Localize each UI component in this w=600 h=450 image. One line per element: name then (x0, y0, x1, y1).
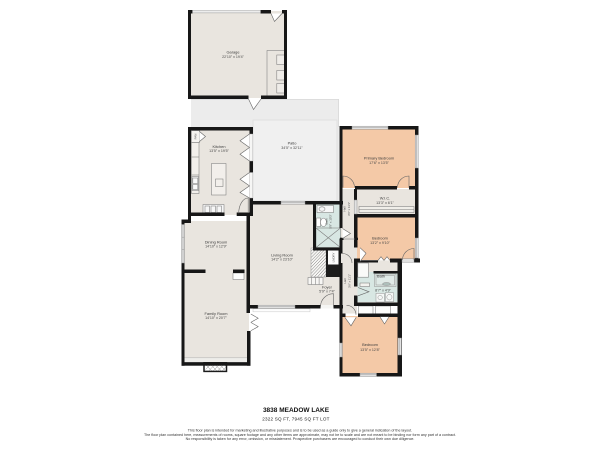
svg-text:W.I.C.: W.I.C. (380, 196, 391, 201)
svg-text:14'10" x 12'9": 14'10" x 12'9" (205, 244, 227, 248)
svg-text:13'3" x 6'1": 13'3" x 6'1" (376, 201, 394, 205)
svg-text:Hall: Hall (343, 206, 347, 211)
svg-text:No responsibility is taken for: No responsibility is taken for any error… (186, 437, 415, 441)
svg-text:LNDRY: LNDRY (332, 253, 336, 263)
svg-text:Bedroom: Bedroom (372, 236, 388, 241)
svg-text:13'5" x 19'5": 13'5" x 19'5" (209, 149, 229, 153)
svg-text:Primary Bedroom: Primary Bedroom (364, 155, 394, 160)
svg-text:Hall: Hall (343, 278, 347, 283)
svg-text:13'5" x 12'8": 13'5" x 12'8" (360, 348, 380, 352)
svg-text:5'9" x 10'3": 5'9" x 10'3" (329, 214, 333, 228)
svg-text:22'10" x 19'4": 22'10" x 19'4" (222, 55, 244, 59)
svg-text:34'5" x 32'11": 34'5" x 32'11" (281, 146, 303, 150)
svg-text:3838 MEADOW LAKE: 3838 MEADOW LAKE (263, 407, 330, 414)
svg-text:17'6" x 13'5": 17'6" x 13'5" (369, 161, 389, 165)
svg-text:Bath: Bath (377, 273, 385, 278)
svg-text:3'6" x 11'1": 3'6" x 11'1" (347, 202, 351, 216)
svg-text:2322 SQ FT, 7945 SQ FT LOT: 2322 SQ FT, 7945 SQ FT LOT (262, 416, 329, 421)
svg-text:8'7" x 4'9": 8'7" x 4'9" (375, 288, 391, 292)
svg-text:PAN: PAN (194, 134, 198, 140)
svg-text:Bedroom: Bedroom (362, 342, 378, 347)
svg-text:5'9" x 7'4": 5'9" x 7'4" (319, 289, 335, 293)
svg-text:13'2" x 9'10": 13'2" x 9'10" (370, 241, 390, 245)
svg-text:14'10" x 20'7": 14'10" x 20'7" (205, 316, 227, 320)
svg-text:3'6" x 11'1": 3'6" x 11'1" (348, 274, 352, 288)
svg-text:14'2" x 23'10": 14'2" x 23'10" (271, 258, 293, 262)
svg-text:Garage: Garage (227, 50, 240, 55)
